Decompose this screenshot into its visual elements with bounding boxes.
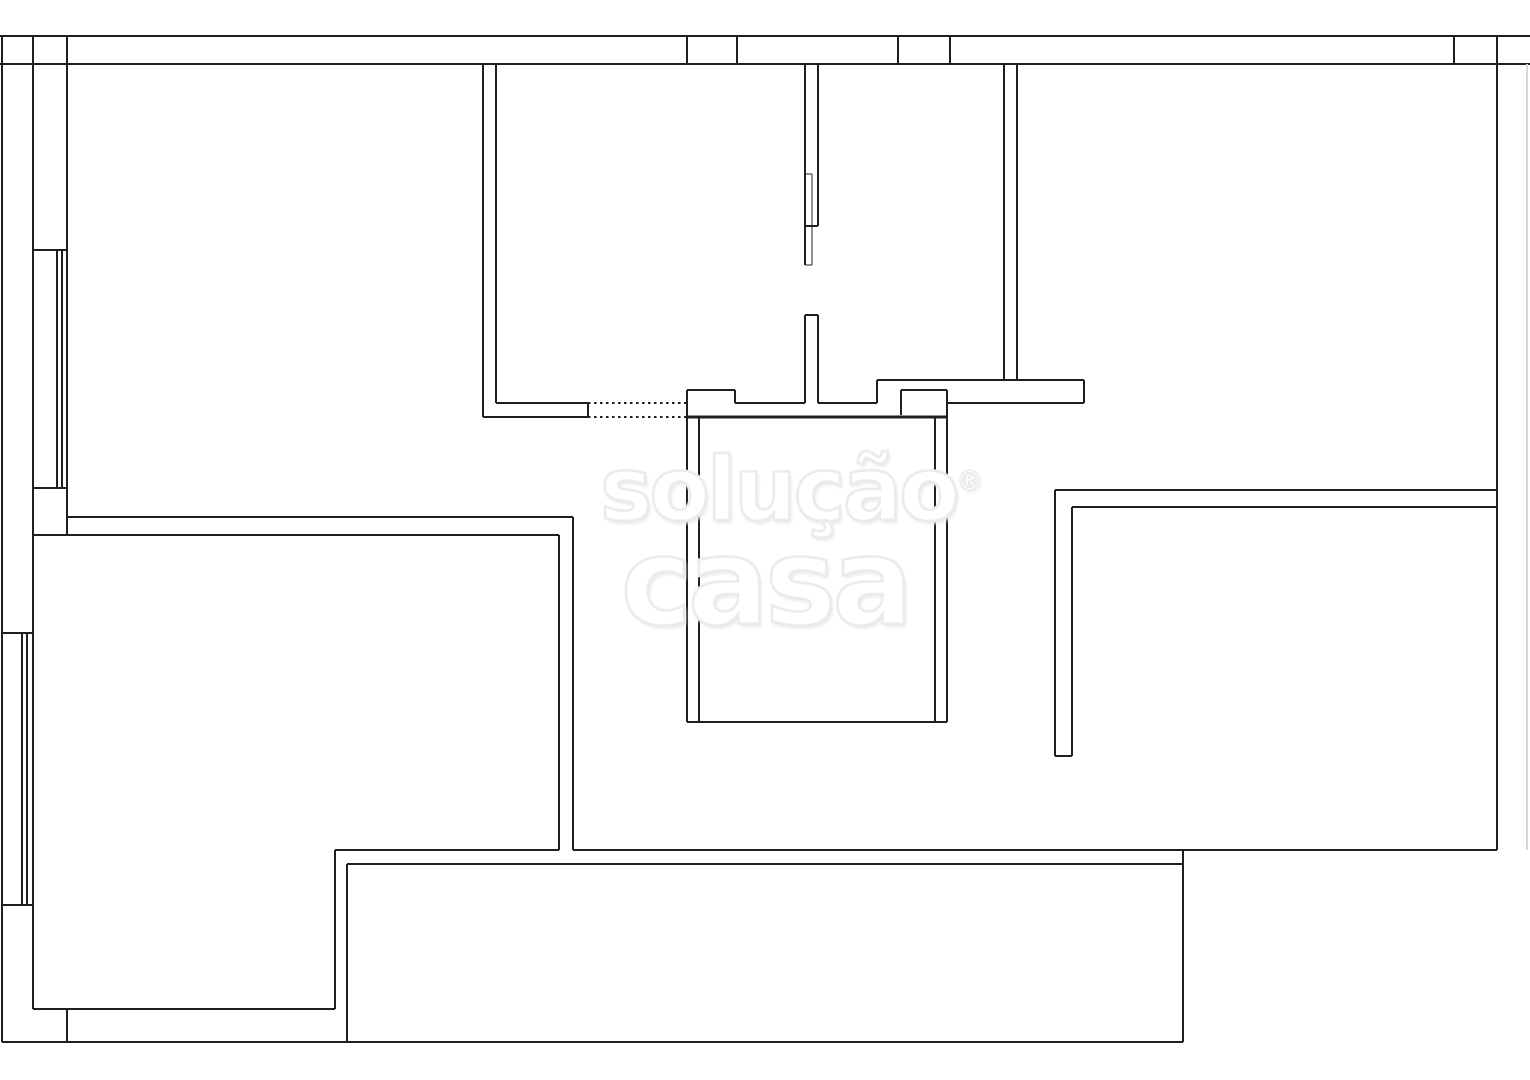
floor-plan-page: solução® casa [0,0,1530,1080]
floor-plan-drawing [0,0,1530,1080]
